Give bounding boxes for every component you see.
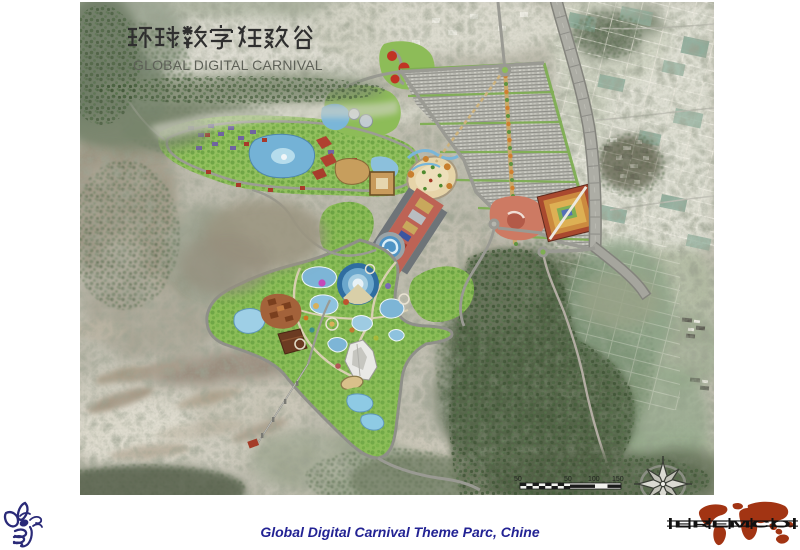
svg-text:100: 100 (588, 476, 600, 483)
svg-text:150: 150 (612, 476, 624, 483)
svg-text:50: 50 (564, 476, 572, 483)
svg-text:50: 50 (514, 476, 522, 483)
svg-text:GLOBAL DIGITAL CARNIVAL: GLOBAL DIGITAL CARNIVAL (133, 57, 323, 73)
svg-text:Global Digital Carnival Theme: Global Digital Carnival Theme Parc, Chin… (260, 524, 540, 540)
svg-text:EREMCO: EREMCO (674, 519, 791, 531)
